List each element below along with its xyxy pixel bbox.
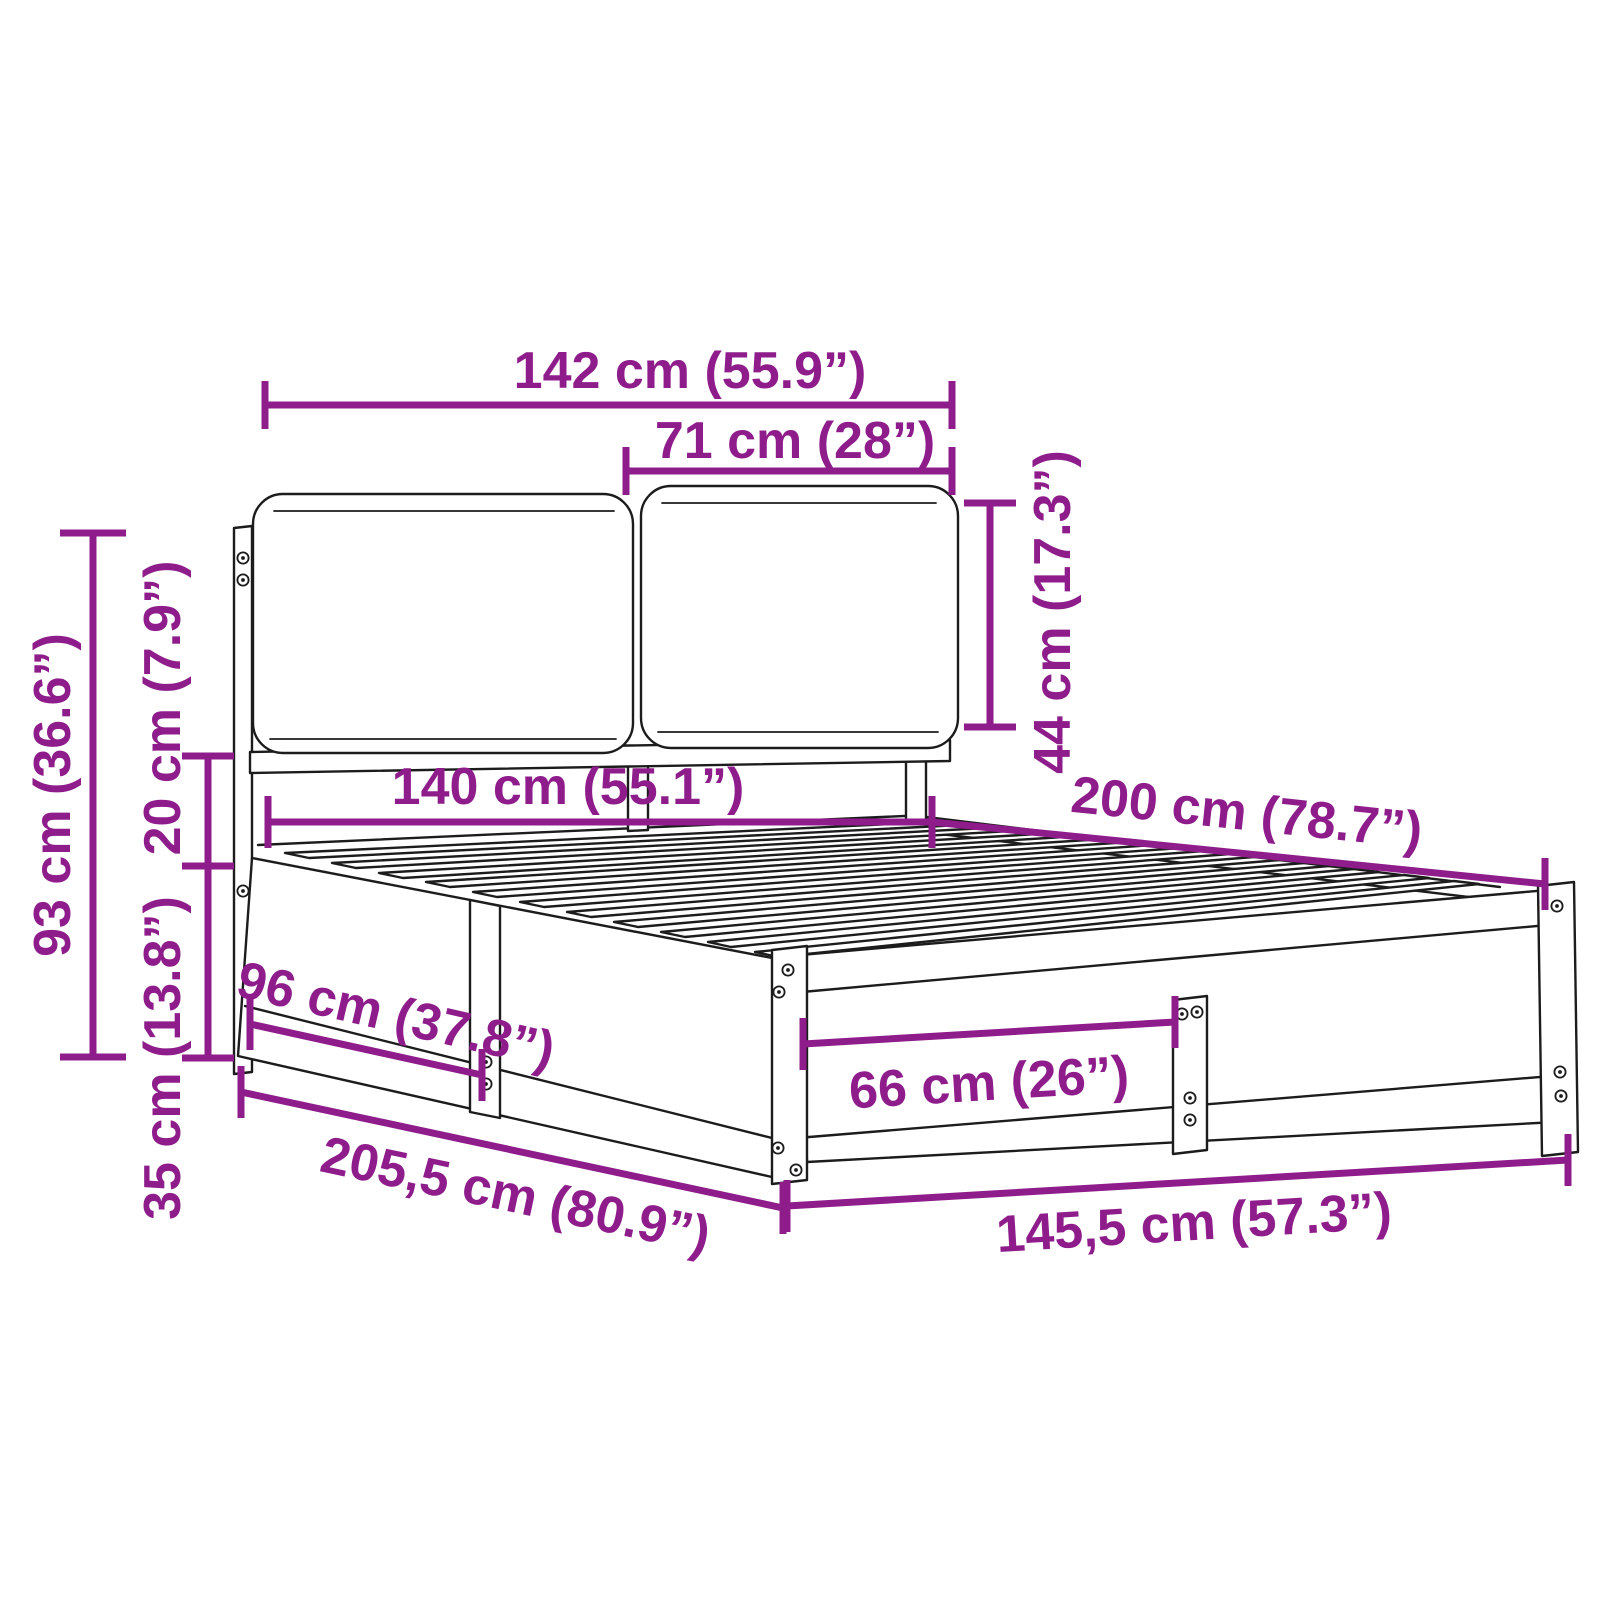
- dim-cushion-gap: 20 cm (7.9”): [134, 561, 234, 866]
- screw-icon: [237, 885, 248, 896]
- screw-icon: [1184, 1092, 1195, 1103]
- screw-icon: [782, 964, 793, 975]
- dim-label-mattress-width: 140 cm (55.1”): [392, 758, 745, 816]
- headboard-cushion-left: [253, 494, 633, 753]
- dim-frame-height: 35 cm (13.8”): [134, 866, 234, 1220]
- dim-cushion-width: 71 cm (28”): [626, 412, 952, 495]
- screw-icon: [773, 986, 784, 997]
- foot-right-corner-post: [1538, 882, 1578, 1156]
- dim-label-total-width: 145,5 cm (57.3”): [995, 1182, 1394, 1264]
- screw-icon: [1554, 1066, 1565, 1077]
- dim-label-cushion-gap: 20 cm (7.9”): [134, 561, 192, 856]
- screw-icon: [790, 1164, 801, 1175]
- dim-label-headboard-height: 93 cm (36.6”): [24, 633, 82, 957]
- screw-icon: [1184, 1114, 1195, 1125]
- screw-icon: [1555, 1090, 1566, 1101]
- dim-cushion-height: 44 cm (17.3”): [964, 450, 1082, 774]
- dim-headboard-height: 93 cm (36.6”): [24, 533, 126, 1057]
- dim-line-cushion-height: [964, 503, 1016, 727]
- screw-icon: [237, 552, 248, 563]
- dim-label-cushion-height: 44 cm (17.3”): [1024, 450, 1082, 774]
- screw-icon: [1551, 900, 1562, 911]
- dim-label-frame-height: 35 cm (13.8”): [134, 896, 192, 1220]
- screw-icon: [1191, 1006, 1202, 1017]
- dim-label-headboard-width: 142 cm (55.9”): [514, 342, 867, 400]
- headboard-cushion-right: [641, 486, 958, 748]
- bed-dimension-diagram: 142 cm (55.9”) 71 cm (28”) 44 cm (17.3”)…: [0, 0, 1600, 1600]
- screw-icon: [772, 1142, 783, 1153]
- screw-icon: [237, 574, 248, 585]
- dim-label-cushion-width: 71 cm (28”): [655, 412, 935, 470]
- dimension-diagram-page: 142 cm (55.9”) 71 cm (28”) 44 cm (17.3”)…: [0, 0, 1600, 1600]
